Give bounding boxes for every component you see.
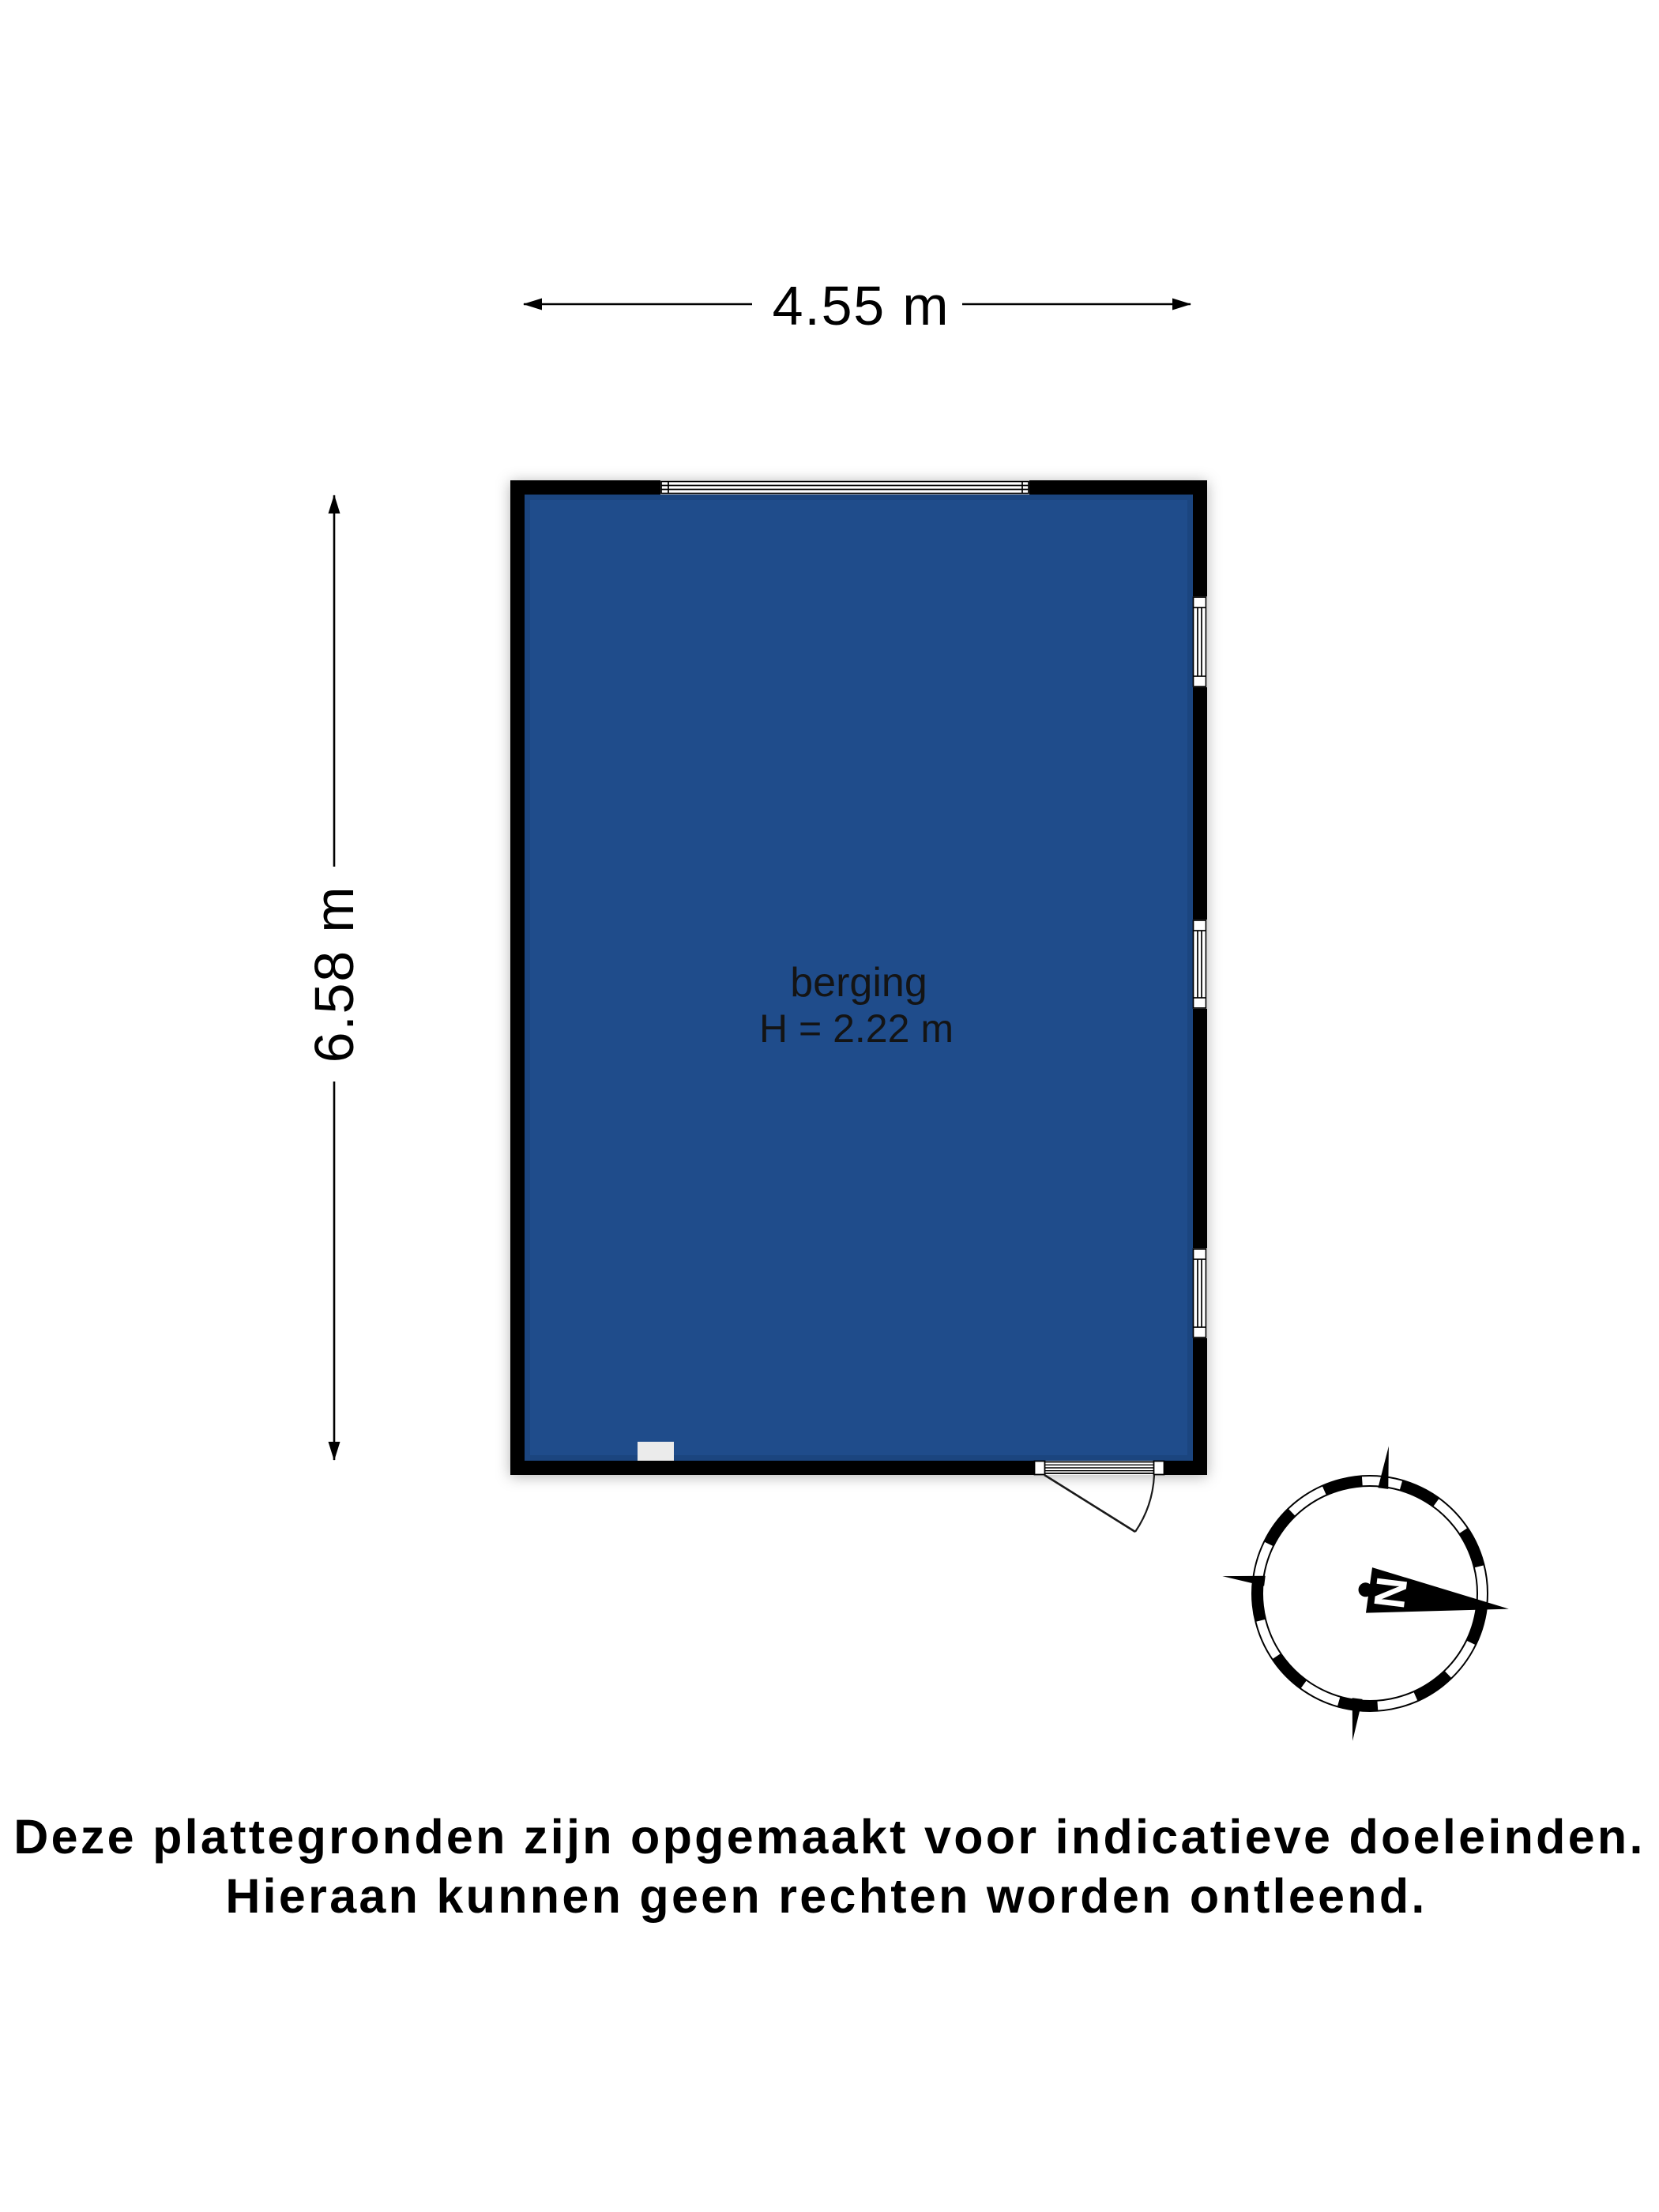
svg-text:6.58 m: 6.58 m [303, 886, 365, 1063]
svg-text:Hieraan kunnen geen rechten wo: Hieraan kunnen geen rechten worden ontle… [225, 1869, 1427, 1923]
svg-text:H = 2.22 m: H = 2.22 m [759, 1006, 954, 1051]
svg-text:N: N [1364, 1574, 1416, 1612]
svg-text:berging: berging [790, 960, 927, 1006]
svg-text:Deze plattegronden zijn opgema: Deze plattegronden zijn opgemaakt voor i… [13, 1810, 1645, 1864]
svg-text:4.55 m: 4.55 m [773, 275, 950, 337]
